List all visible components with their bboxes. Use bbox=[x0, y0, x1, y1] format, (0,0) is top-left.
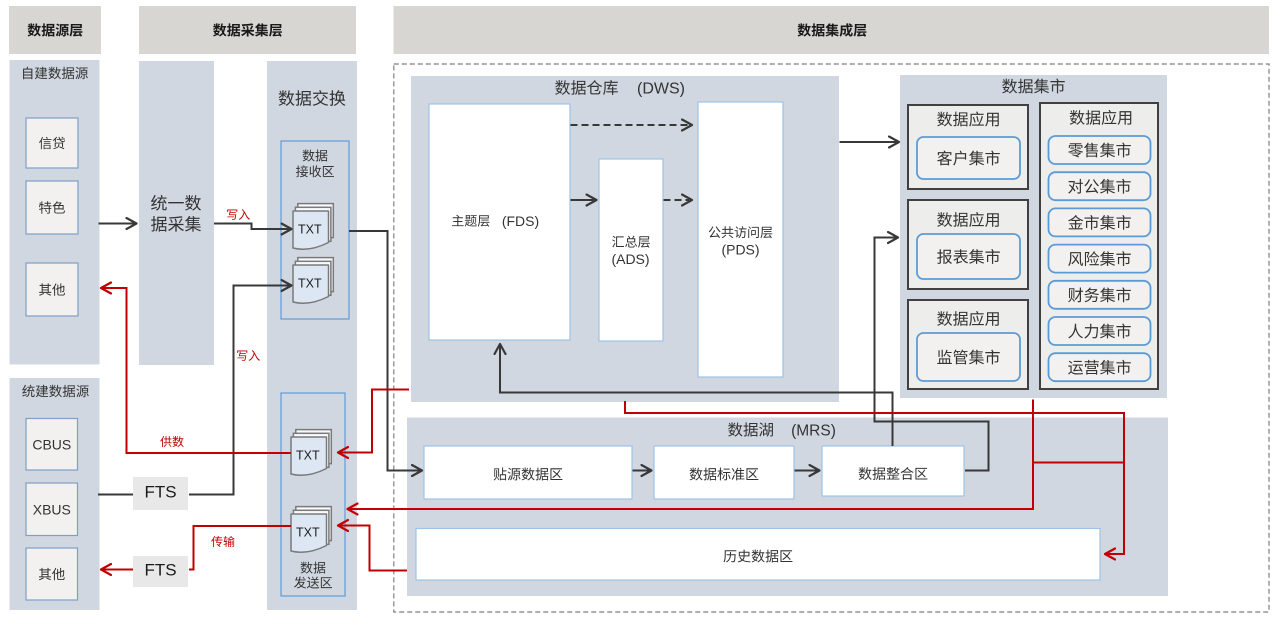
svg-text:CBUS: CBUS bbox=[32, 436, 71, 452]
svg-text:(PDS): (PDS) bbox=[721, 242, 759, 258]
svg-text:(DWS): (DWS) bbox=[637, 81, 685, 98]
svg-text:TXT: TXT bbox=[298, 223, 322, 237]
svg-text:(MRS): (MRS) bbox=[791, 423, 836, 440]
svg-text:TXT: TXT bbox=[296, 526, 320, 540]
svg-text:XBUS: XBUS bbox=[33, 501, 71, 517]
svg-text:(ADS): (ADS) bbox=[611, 251, 649, 267]
svg-text:TXT: TXT bbox=[296, 449, 320, 463]
svg-text:(FDS): (FDS) bbox=[502, 213, 539, 229]
svg-text:FTS: FTS bbox=[144, 561, 176, 580]
svg-text:FTS: FTS bbox=[144, 483, 176, 502]
svg-text:TXT: TXT bbox=[298, 277, 322, 291]
